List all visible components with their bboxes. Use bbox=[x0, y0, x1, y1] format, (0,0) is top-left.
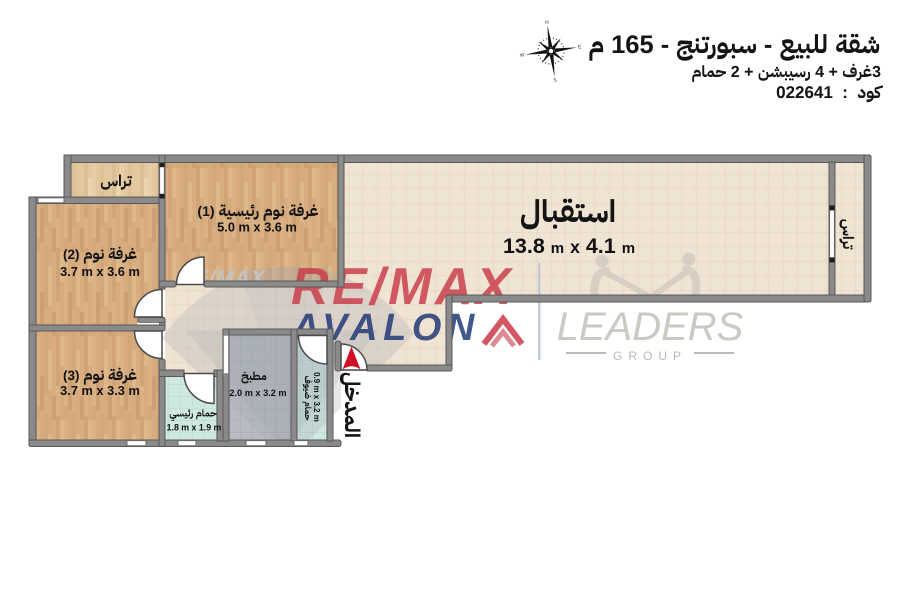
svg-text:5.0 m x 3.6 m: 5.0 m x 3.6 m bbox=[217, 220, 297, 235]
svg-text:0.9 m x 3.2 m: 0.9 m x 3.2 m bbox=[312, 372, 321, 422]
svg-text:3.7 m x 3.6 m: 3.7 m x 3.6 m bbox=[60, 264, 140, 279]
svg-text:1.8 m x 1.9 m: 1.8 m x 1.9 m bbox=[167, 423, 222, 433]
svg-text:13.8 m x 4.1 m: 13.8 m x 4.1 m bbox=[503, 234, 635, 258]
svg-text:2.0 m x 3.2 m: 2.0 m x 3.2 m bbox=[229, 388, 286, 398]
svg-text:LEADERS: LEADERS bbox=[557, 305, 744, 349]
svg-text:GROUP: GROUP bbox=[613, 349, 687, 363]
svg-text:3.7 m x 3.3 m: 3.7 m x 3.3 m bbox=[60, 383, 140, 398]
